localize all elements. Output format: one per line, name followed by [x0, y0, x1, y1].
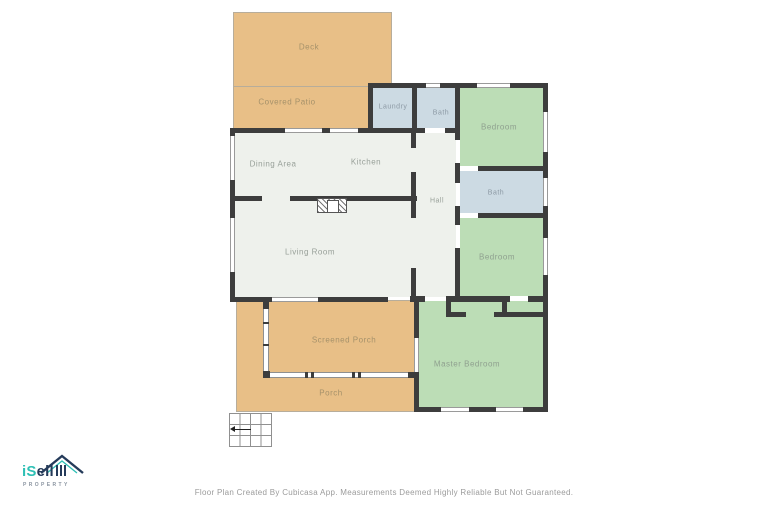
screen-post — [311, 372, 314, 378]
room-main-interior — [235, 133, 456, 297]
window-marker — [543, 112, 548, 152]
window-marker — [441, 407, 469, 412]
screen-post — [263, 302, 269, 309]
wall-segment — [455, 248, 460, 297]
screen-post — [408, 372, 415, 378]
wall-segment — [414, 372, 419, 412]
wall-segment — [417, 128, 425, 133]
wall-segment — [318, 297, 388, 302]
window-marker — [477, 83, 510, 88]
wall-segment — [368, 88, 373, 133]
screen-post — [263, 322, 269, 324]
wall-segment — [446, 312, 466, 317]
wall-segment — [455, 88, 460, 133]
wall-segment — [412, 88, 417, 133]
fireplace-firebox — [327, 200, 339, 213]
window-marker — [272, 297, 318, 302]
window-marker — [230, 136, 235, 180]
room-label-hall: Hall — [430, 198, 444, 205]
room-label-bedroom-middle: Bedroom — [479, 253, 515, 262]
room-label-dining-area: Dining Area — [250, 160, 297, 169]
screen-post — [305, 372, 308, 378]
room-label-bath-top: Bath — [433, 110, 449, 117]
wall-segment — [450, 296, 510, 302]
logo-wordmark: iSell — [22, 463, 66, 480]
screen-post — [352, 372, 355, 378]
window-marker — [543, 238, 548, 275]
window-marker — [285, 128, 322, 133]
screen-post — [263, 344, 269, 346]
room-label-covered-patio: Covered Patio — [258, 98, 315, 107]
wall-segment — [445, 128, 460, 133]
disclaimer-text: Floor Plan Created By Cubicasa App. Meas… — [0, 488, 768, 497]
floor-plan-page: Deck Covered Patio Laundry Bath Bedroom … — [0, 0, 768, 512]
room-label-kitchen: Kitchen — [351, 158, 381, 167]
steps-direction-arrow-icon — [230, 426, 235, 432]
wall-segment — [494, 312, 548, 317]
fireplace-icon — [317, 198, 347, 213]
room-label-porch: Porch — [319, 389, 342, 398]
window-marker — [426, 83, 440, 88]
room-label-deck: Deck — [299, 43, 319, 52]
wall-segment — [411, 128, 416, 148]
room-label-living-room: Living Room — [285, 248, 335, 257]
wall-segment — [455, 133, 460, 140]
window-marker — [543, 178, 548, 206]
screen-wall — [263, 302, 269, 378]
wall-segment — [455, 206, 460, 225]
wall-segment — [414, 407, 548, 412]
window-marker — [496, 407, 523, 412]
steps-direction-line — [234, 429, 251, 430]
wall-segment — [478, 166, 548, 171]
room-label-bedroom-top: Bedroom — [481, 123, 517, 132]
room-label-screened-porch: Screened Porch — [312, 336, 376, 345]
screen-post — [263, 371, 270, 378]
wall-segment — [414, 302, 419, 338]
window-marker — [330, 128, 358, 133]
logo-siding-bars-icon — [54, 463, 66, 480]
wall-segment — [478, 213, 548, 218]
wall-segment — [230, 128, 417, 133]
screen-post — [358, 372, 361, 378]
wall-segment — [528, 296, 548, 302]
wall-segment — [230, 196, 262, 201]
window-marker — [230, 218, 235, 272]
room-covered-patio — [233, 87, 368, 128]
wall-segment — [455, 163, 460, 183]
logo-letters-ell: ell — [37, 463, 54, 480]
wall-segment — [290, 196, 417, 201]
window-marker — [414, 338, 419, 372]
entry-steps — [229, 413, 272, 447]
room-label-bath-right: Bath — [488, 190, 504, 197]
room-label-laundry: Laundry — [379, 104, 408, 111]
screen-wall — [263, 372, 415, 378]
wall-segment — [411, 172, 416, 218]
room-bath-top — [417, 88, 455, 128]
logo-letter-s: S — [26, 463, 36, 480]
room-label-master-bedroom: Master Bedroom — [434, 360, 500, 369]
